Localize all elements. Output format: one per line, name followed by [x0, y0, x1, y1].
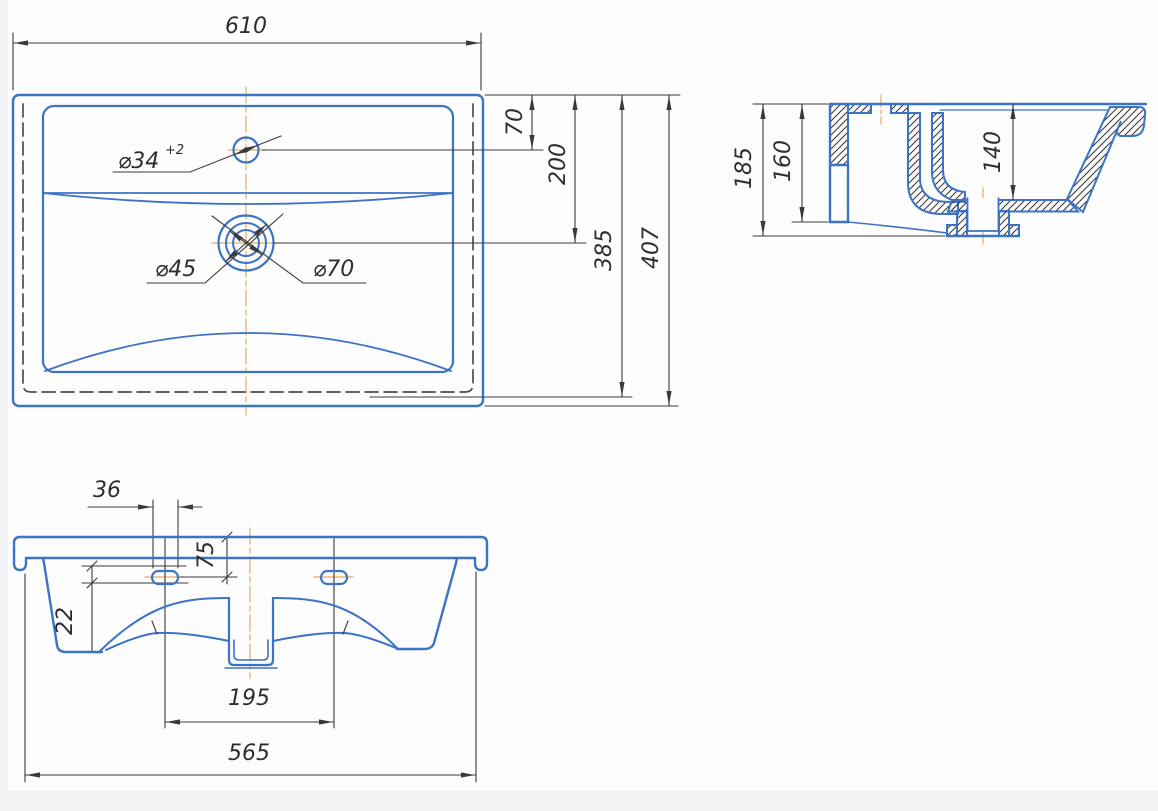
- underside-curves: [100, 598, 397, 651]
- rim-outline: [13, 95, 483, 406]
- washbasin-drawing: 610 ⌀34 +2 ⌀45 ⌀70 70 200 385 407: [0, 0, 1158, 811]
- dim-drain-inner: ⌀45: [155, 257, 196, 282]
- drain-box-inner: [234, 640, 268, 660]
- dim-depth-407: 407: [639, 227, 664, 269]
- top-view: 610 ⌀34 +2 ⌀45 ⌀70 70 200 385 407: [13, 14, 680, 415]
- front-view: 36 75 22 195 565: [14, 478, 487, 782]
- dim-right-stack-lines: [262, 95, 680, 406]
- shell-curve-left: [106, 633, 229, 650]
- dim-drain-outer: ⌀70: [313, 257, 354, 282]
- dim-610-lines: [13, 33, 481, 90]
- dim-faucet-tolerance: +2: [165, 143, 184, 158]
- drain-box: [225, 598, 277, 668]
- apron-cut: [830, 104, 848, 165]
- dim-slot-height-22: 22: [53, 607, 78, 635]
- dim-slot-offset-75: 75: [194, 541, 219, 569]
- left-ear: [14, 550, 26, 570]
- drawing-canvas: 610 ⌀34 +2 ⌀45 ⌀70 70 200 385 407: [0, 0, 1158, 811]
- basin-wall-cut: [932, 113, 965, 202]
- dim-faucet-offset-70: 70: [503, 108, 528, 136]
- bowl-front-curve: [45, 333, 451, 371]
- deck-cut-right: [891, 104, 908, 113]
- deck-cut-left: [848, 104, 871, 113]
- dim-width-610: 610: [225, 14, 267, 39]
- front-wall-cut: [1067, 107, 1145, 212]
- dim-holes-span-195: 195: [228, 686, 270, 711]
- right-ear: [475, 550, 487, 570]
- dim-faucet-dia: ⌀34: [118, 149, 159, 174]
- dim-base-width-565: 565: [228, 741, 270, 766]
- boss-tab-right: [1009, 225, 1019, 236]
- left-wall: [43, 558, 102, 652]
- boss-tab-left: [947, 225, 957, 236]
- dim-slot-width-36: 36: [93, 478, 121, 503]
- right-wall: [397, 558, 457, 649]
- deck-slope-curve: [43, 193, 453, 204]
- dim-basin-back-385: 385: [592, 229, 617, 271]
- shell-bottom-edge: [848, 222, 947, 233]
- dim-height-185: 185: [732, 147, 757, 189]
- boss-right-cut: [999, 211, 1009, 236]
- boss-left-cut: [957, 211, 967, 236]
- side-section-view: 185 160 140: [732, 95, 1146, 247]
- drain-opening: [968, 198, 999, 232]
- dim-apron-160: 160: [771, 140, 796, 182]
- dim-bowl-depth-140: 140: [981, 131, 1006, 173]
- dim-drain-offset-200: 200: [546, 143, 571, 185]
- drain-box-outer: [229, 598, 273, 665]
- hidden-base-outline: [23, 104, 473, 392]
